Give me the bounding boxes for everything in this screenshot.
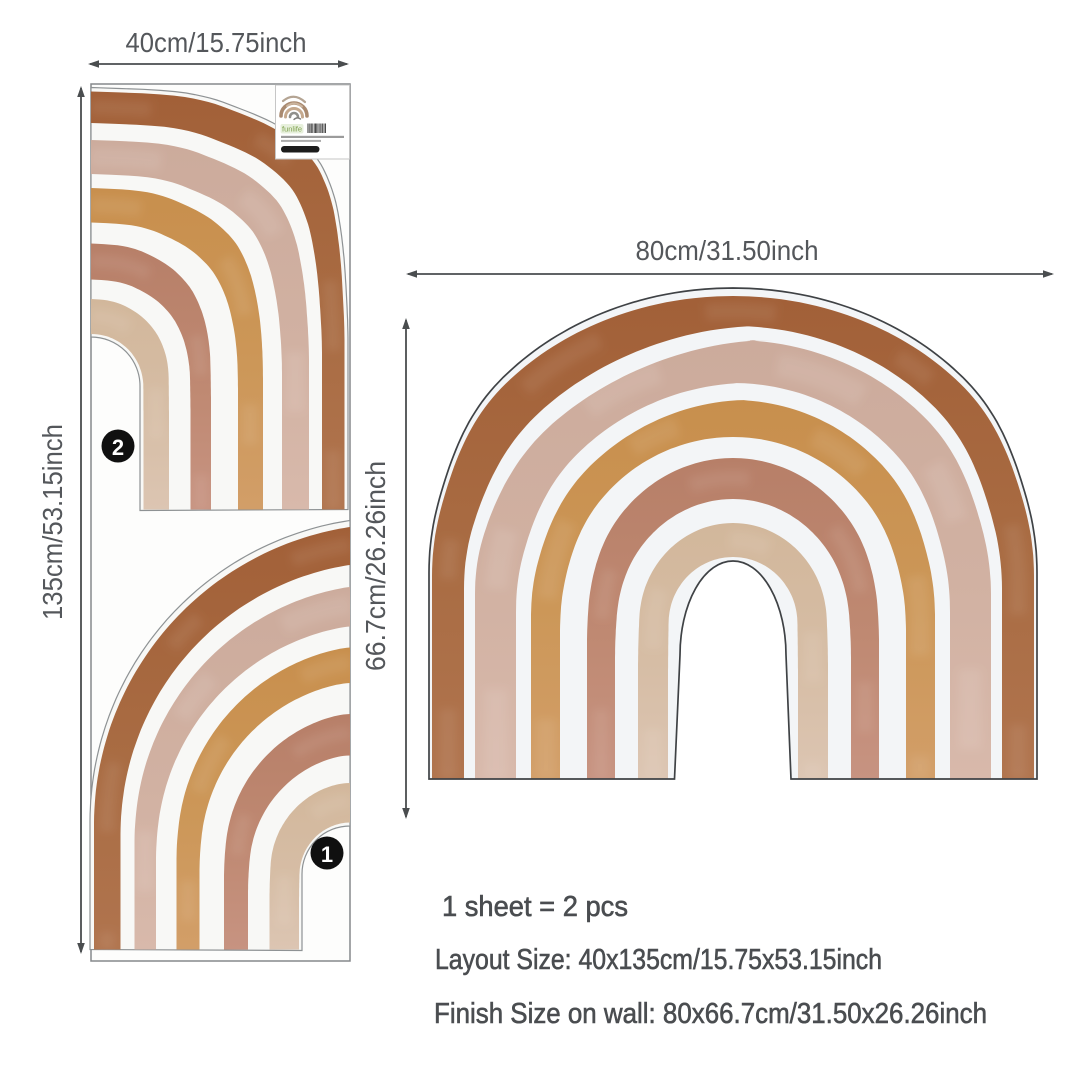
svg-text:Finish Size on wall: 80x66.7cm: Finish Size on wall: 80x66.7cm/31.50x26.… bbox=[434, 998, 987, 1030]
svg-text:2: 2 bbox=[112, 435, 124, 460]
svg-text:1 sheet = 2 pcs: 1 sheet = 2 pcs bbox=[442, 891, 628, 923]
svg-text:funlife: funlife bbox=[282, 125, 302, 134]
svg-text:1: 1 bbox=[321, 842, 333, 867]
svg-text:66.7cm/26.26inch: 66.7cm/26.26inch bbox=[360, 461, 391, 671]
svg-text:Layout Size: 40x135cm/15.75x53: Layout Size: 40x135cm/15.75x53.15inch bbox=[435, 944, 882, 976]
svg-text:135cm/53.15inch: 135cm/53.15inch bbox=[37, 424, 68, 620]
svg-text:40cm/15.75inch: 40cm/15.75inch bbox=[126, 27, 307, 58]
svg-text:80cm/31.50inch: 80cm/31.50inch bbox=[636, 235, 819, 266]
